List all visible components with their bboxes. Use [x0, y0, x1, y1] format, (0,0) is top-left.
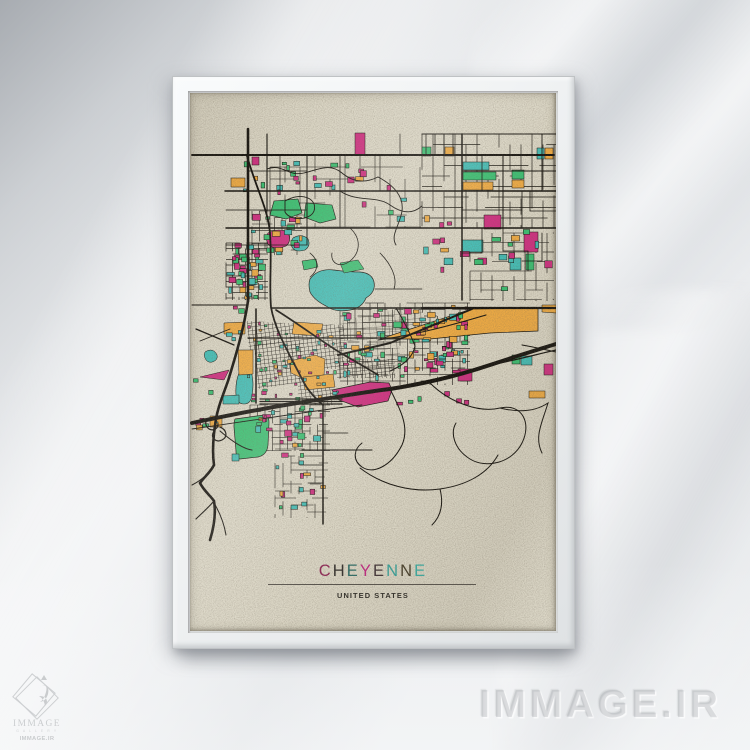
- svg-text:IMMAGE: IMMAGE: [13, 719, 61, 729]
- svg-text:IMMAGE.IR: IMMAGE.IR: [20, 736, 55, 742]
- svg-text:G A L L E R Y: G A L L E R Y: [16, 729, 57, 733]
